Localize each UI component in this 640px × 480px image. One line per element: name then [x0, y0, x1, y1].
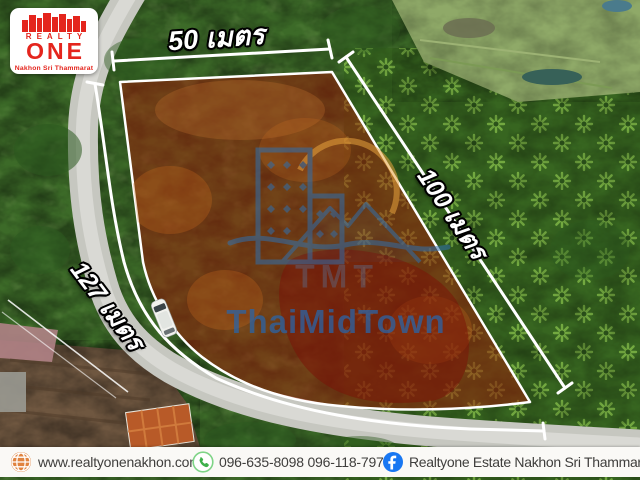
logo-brand-main: ONE [26, 41, 85, 63]
contact-bar: www.realtyonenakhon.com 096-635-8098 096… [0, 447, 640, 477]
globe-icon [10, 451, 32, 473]
website-text: www.realtyonenakhon.com [38, 447, 201, 477]
facebook-icon [382, 451, 404, 473]
city-skyline-icon [22, 12, 86, 32]
logo-subtitle: Nakhon Sri Thammarat [15, 65, 93, 72]
aerial-photo [0, 0, 640, 480]
watermark-name: ThaiMidTown [226, 303, 445, 341]
pond [522, 69, 582, 85]
watermark-abbr: TMT [295, 259, 379, 296]
dimension-label-width-50m: 50 เมตร [167, 13, 266, 63]
phone-icon [192, 451, 214, 473]
phone-numbers: 096-635-8098 096-118-7977 [219, 447, 391, 477]
realty-one-logo: REALTY ONE Nakhon Sri Thammarat [10, 8, 98, 74]
land-listing-image: REALTY ONE Nakhon Sri Thammarat 50 เมตร … [0, 0, 640, 480]
facebook-page-name: Realtyone Estate Nakhon Sri Thammarat [409, 447, 640, 477]
